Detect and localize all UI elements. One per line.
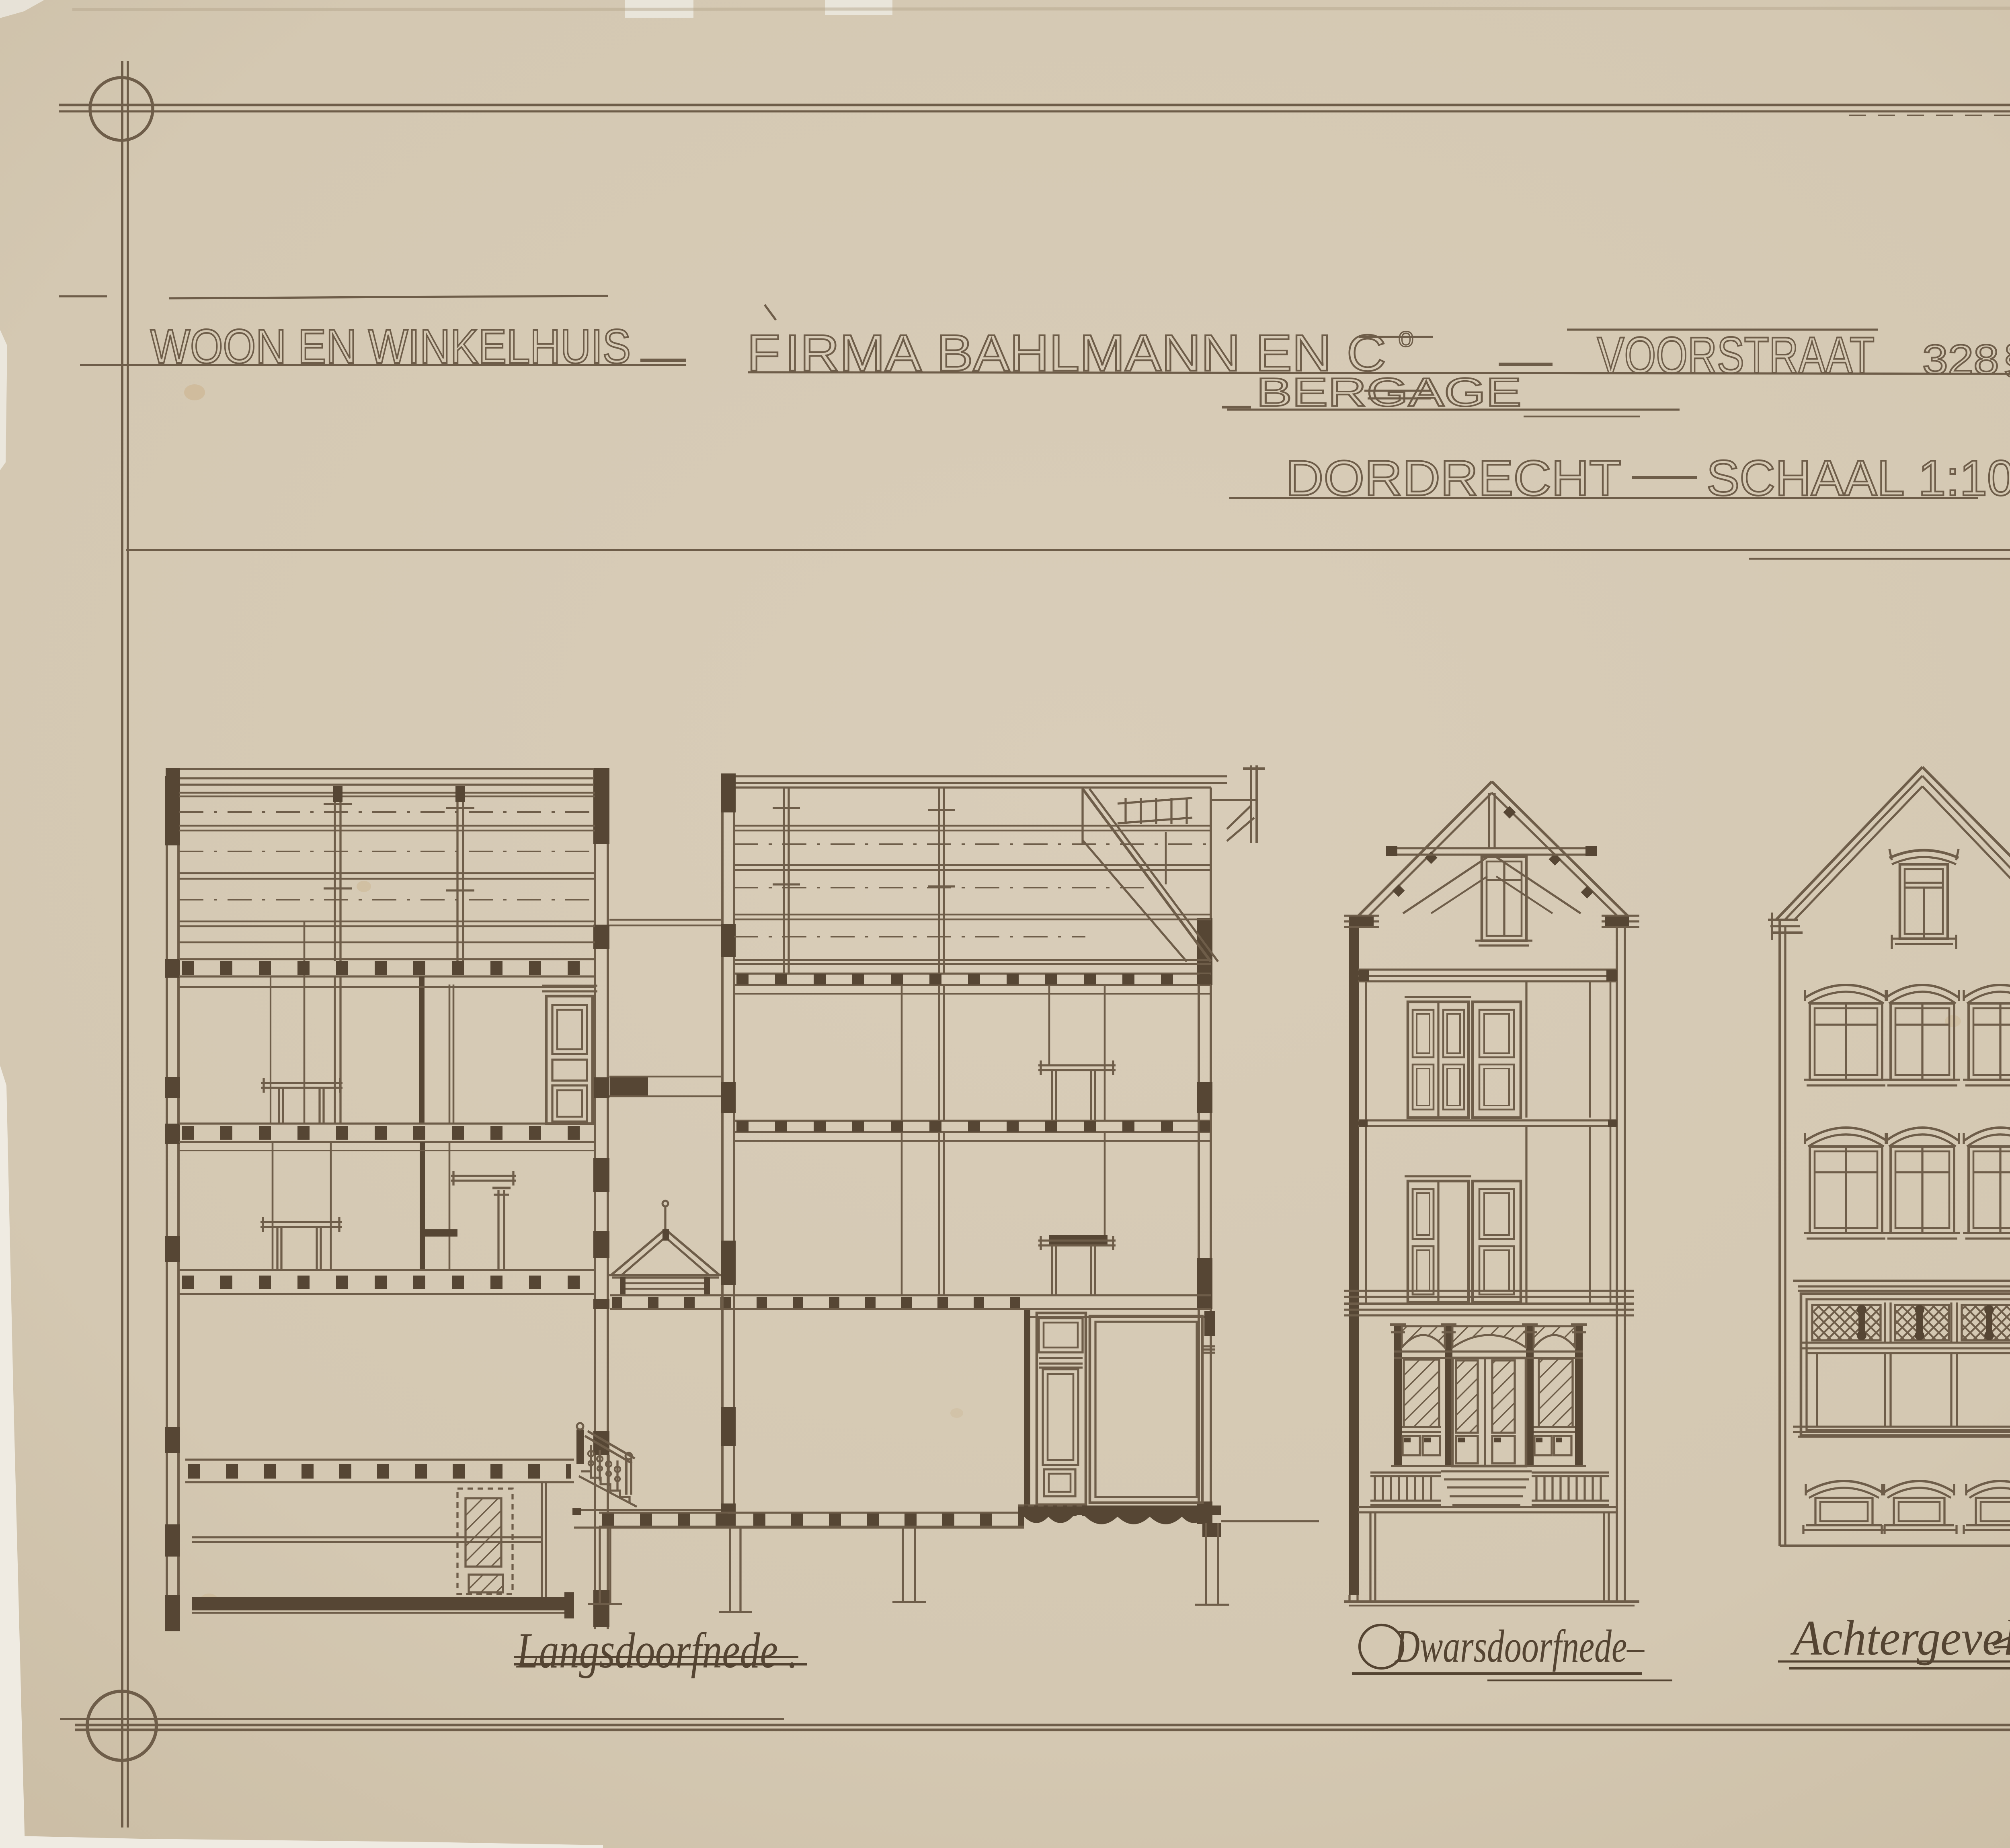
svg-text:Achtergevel—: Achtergevel— <box>1790 1610 2010 1665</box>
svg-text:328 § 330.: 328 § 330. <box>1922 336 2010 383</box>
svg-text:VOORSTRAAT: VOORSTRAAT <box>1597 327 1875 384</box>
svg-text:BERGAGE: BERGAGE <box>1256 370 1522 415</box>
svg-text:Dwarsdoorfnede–: Dwarsdoorfnede– <box>1395 1621 1645 1672</box>
svg-text:Langsdoorfnede .: Langsdoorfnede . <box>516 1623 798 1679</box>
